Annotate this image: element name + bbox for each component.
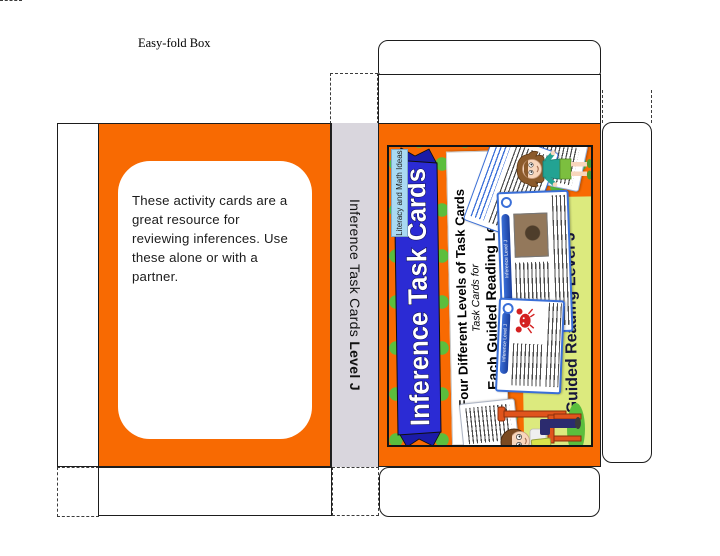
note-text: These activity cards are a great resourc… [118,161,312,286]
right-tuck-flap [602,122,652,463]
bottom-left-fold-flap [57,467,99,517]
cover-artwork: Inference Task Cards Literacy and Math I… [387,145,593,447]
box-cover-panel: Inference Task Cards Literacy and Math I… [378,123,601,467]
left-glue-flap [57,123,99,467]
top-left-fold-flap [330,73,378,124]
page-title: Easy-fold Box [138,36,211,51]
box-back-panel: These activity cards are a great resourc… [98,123,331,467]
spine-label: Inference Task Cards Level J [347,199,363,391]
fold-mark [0,0,22,1]
card-level-label: Inference Level J [501,214,512,304]
top-lid-flap [378,74,601,124]
bottom-panel [98,467,332,516]
brand-tag: Literacy and Math Ideas [391,149,408,237]
card-level-label: Inference Level J [500,312,511,374]
fold-mark [602,90,603,123]
sample-task-card-crab: Inference Level J [495,298,565,395]
bottom-fold-flap [332,467,379,516]
magnifier-logo-icon [501,197,512,208]
easy-fold-box-template-page: Easy-fold Box These activity cards are a… [0,0,720,556]
bottom-lid-flap [379,467,600,517]
cover-artwork-rotated: Inference Task Cards Literacy and Math I… [389,147,593,447]
card-photo [513,213,549,258]
box-spine-panel: Inference Task Cards Level J [331,123,378,467]
boy-reading-clipart [484,403,586,447]
fold-mark [651,90,652,123]
top-tuck-flap [378,40,601,76]
girl-clipart [515,145,593,193]
crab-image [511,306,536,335]
note-card: These activity cards are a great resourc… [118,161,312,439]
